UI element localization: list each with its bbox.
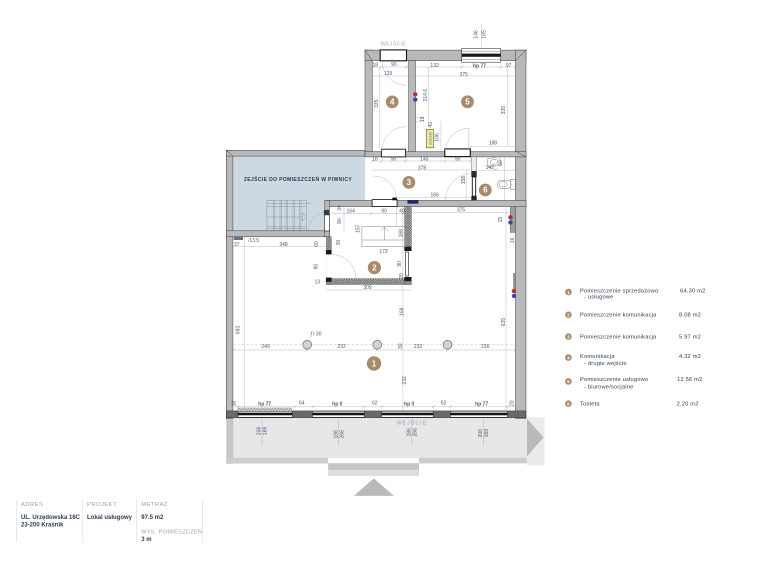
svg-text:Pomieszczenie usługowo: Pomieszczenie usługowo <box>580 377 648 383</box>
svg-text:- drugie wejście: - drugie wejście <box>584 361 627 367</box>
svg-text:Komunikacja: Komunikacja <box>580 354 615 360</box>
svg-text:18: 18 <box>232 401 238 407</box>
svg-text:5: 5 <box>465 98 470 107</box>
svg-text:20: 20 <box>509 400 515 406</box>
svg-text:hp 77: hp 77 <box>258 401 271 407</box>
svg-text:18: 18 <box>372 156 378 162</box>
svg-text:40: 40 <box>399 208 405 214</box>
svg-text:19: 19 <box>420 116 426 122</box>
svg-text:30: 30 <box>398 343 404 349</box>
svg-text:6: 6 <box>483 186 488 195</box>
svg-text:635: 635 <box>501 318 507 327</box>
svg-text:METRAŻ: METRAŻ <box>141 501 168 508</box>
svg-text:60: 60 <box>498 160 504 166</box>
svg-text:157: 157 <box>356 224 362 233</box>
svg-text:Toaleta: Toaleta <box>580 401 600 407</box>
svg-text:249: 249 <box>261 344 270 350</box>
svg-text:232: 232 <box>402 376 408 385</box>
svg-text:18: 18 <box>373 63 379 69</box>
svg-text:60: 60 <box>314 241 320 247</box>
svg-text:34: 34 <box>337 205 343 211</box>
svg-text:90: 90 <box>391 156 397 162</box>
svg-text:129: 129 <box>384 71 393 77</box>
svg-text:hp 0: hp 0 <box>332 401 342 407</box>
svg-text:90: 90 <box>397 261 403 267</box>
svg-text:1: 1 <box>372 359 377 368</box>
svg-text:3: 3 <box>567 335 570 340</box>
svg-text:GRZEJNIK: GRZEJNIK <box>429 132 433 145</box>
svg-text:37: 37 <box>234 242 240 248</box>
svg-text:189: 189 <box>484 429 490 438</box>
svg-text:ZEJŚCIE DO POMIESZCZEŃ W PIWNI: ZEJŚCIE DO POMIESZCZEŃ W PIWNICY <box>244 175 353 183</box>
svg-text:30: 30 <box>336 240 342 246</box>
svg-text:62: 62 <box>372 401 378 407</box>
svg-text:ADRES: ADRES <box>21 502 43 508</box>
svg-text:214.6: 214.6 <box>423 89 429 102</box>
svg-text:hp 0: hp 0 <box>404 401 414 407</box>
svg-text:173: 173 <box>379 249 388 255</box>
svg-text:4: 4 <box>390 98 395 107</box>
svg-text:WYS. POMIESZCZEŃ: WYS. POMIESZCZEŃ <box>141 528 202 535</box>
svg-text:13: 13 <box>315 280 321 286</box>
svg-text:UL. Urzędowska 16C: UL. Urzędowska 16C <box>21 515 81 521</box>
svg-text:188: 188 <box>489 141 498 147</box>
svg-text:145: 145 <box>420 156 429 162</box>
svg-text:16: 16 <box>510 237 516 243</box>
svg-text:348: 348 <box>279 242 288 248</box>
svg-text:ƒr 30: ƒr 30 <box>310 332 322 338</box>
svg-text:236: 236 <box>481 344 490 350</box>
svg-text:64.30 m2: 64.30 m2 <box>680 289 705 295</box>
svg-text:375: 375 <box>460 72 469 78</box>
svg-text:64: 64 <box>299 401 305 407</box>
svg-text:189: 189 <box>263 427 269 436</box>
svg-text:4.32 m2: 4.32 m2 <box>679 354 701 360</box>
svg-text:375: 375 <box>457 208 466 214</box>
svg-text:40: 40 <box>428 122 434 128</box>
svg-text:232: 232 <box>414 344 423 350</box>
svg-text:90: 90 <box>337 218 343 224</box>
svg-text:WEJŚCIE: WEJŚCIE <box>381 40 407 48</box>
svg-text:2.20 m2: 2.20 m2 <box>677 401 699 407</box>
svg-text:2: 2 <box>372 263 377 272</box>
svg-text:97: 97 <box>506 63 512 69</box>
svg-text:15: 15 <box>498 217 504 223</box>
svg-text:90: 90 <box>314 264 320 270</box>
svg-text:2: 2 <box>567 313 570 318</box>
svg-text:hp 77: hp 77 <box>475 401 488 407</box>
svg-text:309: 309 <box>363 285 372 291</box>
svg-text:- biurowe/socjalne: - biurowe/socjalne <box>584 384 633 390</box>
svg-text:Lokal usługowy: Lokal usługowy <box>87 515 133 521</box>
svg-text:168: 168 <box>399 229 405 238</box>
svg-text:378: 378 <box>418 165 427 171</box>
svg-text:335: 335 <box>501 106 507 115</box>
svg-text:166: 166 <box>431 192 440 198</box>
svg-text:97.5 m2: 97.5 m2 <box>141 515 164 521</box>
svg-text:335: 335 <box>374 99 380 108</box>
svg-text:5: 5 <box>567 379 570 384</box>
svg-text:8.08 m2: 8.08 m2 <box>679 312 701 318</box>
svg-text:3 m: 3 m <box>141 537 151 543</box>
svg-text:‹13.5: ‹13.5 <box>248 238 260 244</box>
svg-text:90: 90 <box>381 208 387 214</box>
svg-text:62: 62 <box>441 401 447 407</box>
svg-text:4: 4 <box>567 355 570 360</box>
svg-text:158: 158 <box>461 176 467 185</box>
svg-text:Pomieszczenie komunikacja: Pomieszczenie komunikacja <box>580 334 657 340</box>
svg-text:90: 90 <box>455 156 461 162</box>
svg-text:164: 164 <box>347 208 356 214</box>
svg-text:Pomieszczenie komunikacja: Pomieszczenie komunikacja <box>580 312 657 318</box>
svg-text:266: 266 <box>339 430 345 439</box>
svg-text:20: 20 <box>399 273 405 279</box>
svg-text:12.56 m2: 12.56 m2 <box>677 377 702 383</box>
svg-text:146: 146 <box>474 30 480 39</box>
svg-text:hp 77: hp 77 <box>473 64 486 70</box>
svg-text:693: 693 <box>236 326 242 335</box>
svg-text:132: 132 <box>430 63 439 69</box>
svg-text:- usługowe: - usługowe <box>584 295 614 301</box>
svg-text:106: 106 <box>435 133 441 142</box>
svg-text:266: 266 <box>413 428 419 437</box>
svg-text:168: 168 <box>400 307 406 316</box>
svg-text:90: 90 <box>391 62 397 68</box>
svg-text:5.97 m2: 5.97 m2 <box>679 334 701 340</box>
svg-text:165: 165 <box>482 30 488 39</box>
svg-text:6: 6 <box>567 402 570 407</box>
svg-text:1: 1 <box>567 290 570 295</box>
svg-text:23-200 Kraśnik: 23-200 Kraśnik <box>21 523 64 529</box>
svg-text:147: 147 <box>486 165 495 171</box>
svg-text:3: 3 <box>407 178 412 187</box>
svg-text:PROJEKT: PROJEKT <box>87 502 117 508</box>
svg-text:232: 232 <box>337 344 346 350</box>
